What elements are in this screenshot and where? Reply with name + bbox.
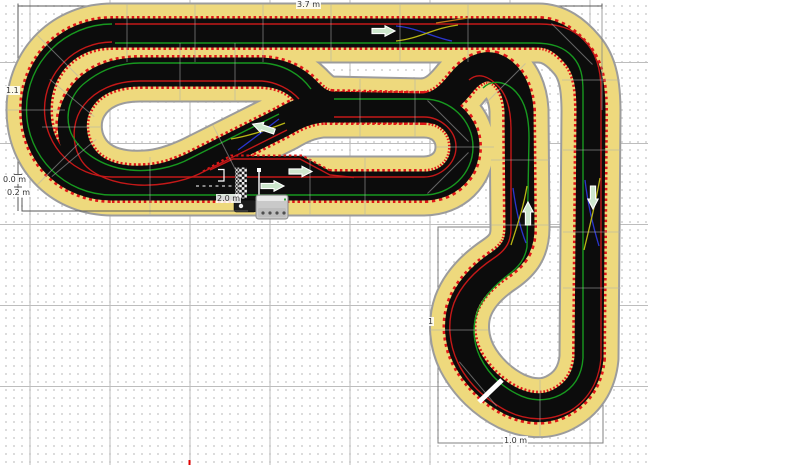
power-base-top xyxy=(257,196,287,201)
power-base-led-icon xyxy=(284,199,286,201)
connector-plug xyxy=(239,204,243,208)
dim-label-height: 1.1 xyxy=(5,86,20,95)
dim-label-offset: 0.2 m xyxy=(6,188,31,197)
dim-label-loop-w: 1.0 m xyxy=(503,436,528,445)
track-editor-window: 3.7 m 1.1 0.0 m 0.2 m 2.0 m 1.0 m 1 xyxy=(0,0,800,465)
power-base-button[interactable] xyxy=(261,211,264,214)
dim-label-origin: 0.0 m xyxy=(2,175,27,184)
power-base-button[interactable] xyxy=(282,211,285,214)
power-base-button[interactable] xyxy=(268,211,271,214)
track-layout-canvas[interactable] xyxy=(0,0,800,465)
start-line-marker xyxy=(257,168,261,172)
dim-label-straight: 2.0 m xyxy=(216,194,241,203)
track-circuit[interactable] xyxy=(36,33,591,408)
power-base-button[interactable] xyxy=(275,211,278,214)
dim-label-loop-h: 1 xyxy=(427,317,434,326)
dim-label-width: 3.7 m xyxy=(296,0,321,9)
